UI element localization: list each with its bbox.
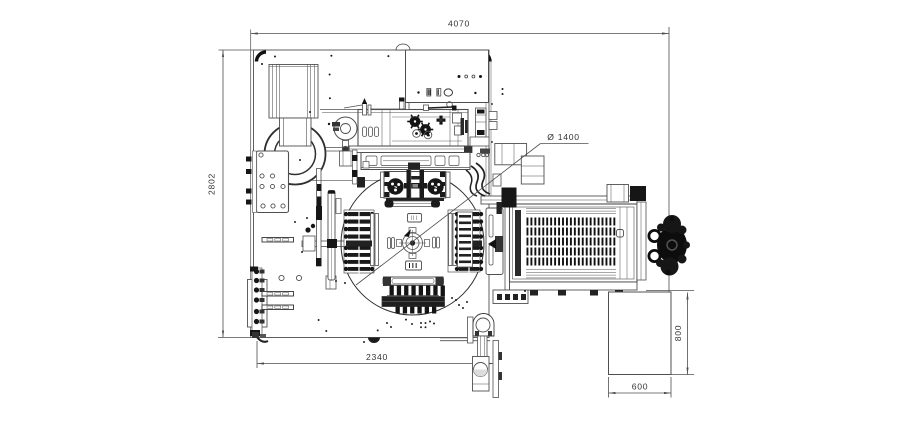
svg-text:2340: 2340 bbox=[366, 352, 388, 362]
svg-text:Ø 1400: Ø 1400 bbox=[547, 132, 579, 142]
svg-text:800: 800 bbox=[673, 325, 683, 341]
svg-text:2802: 2802 bbox=[207, 173, 217, 195]
svg-text:4070: 4070 bbox=[448, 19, 470, 29]
svg-text:600: 600 bbox=[632, 382, 648, 392]
